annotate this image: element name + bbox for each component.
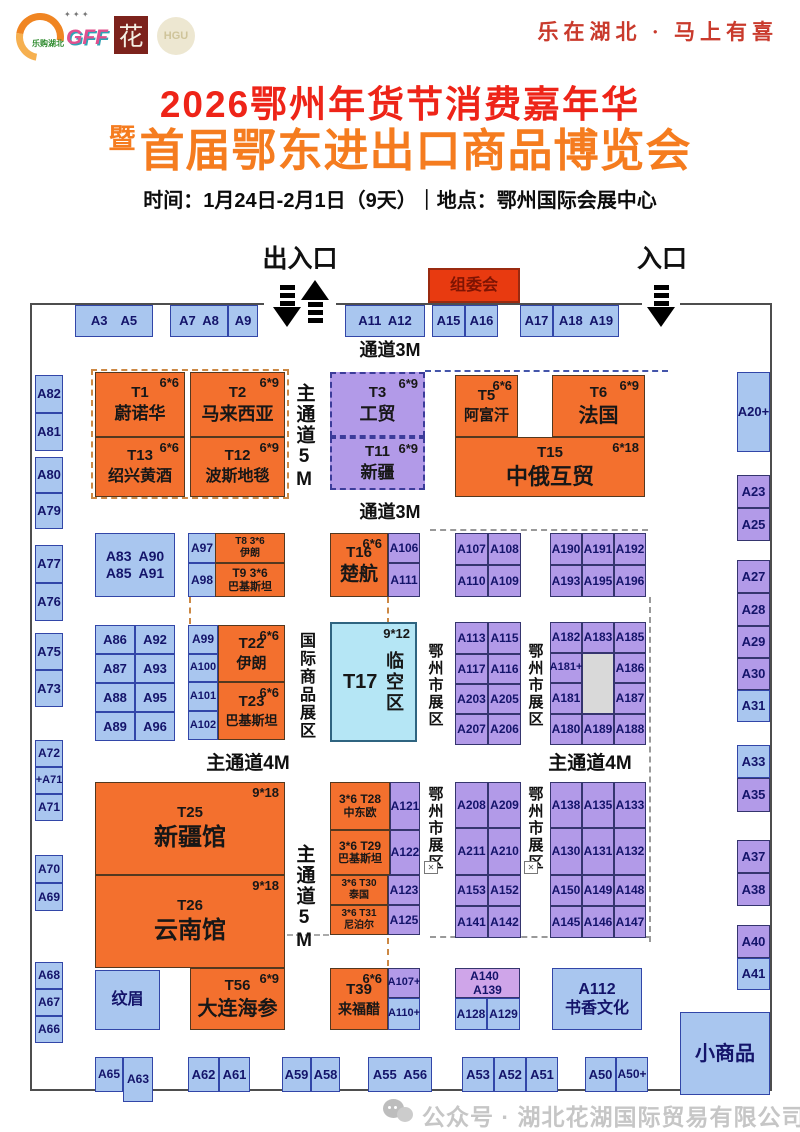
booth-A211: A211 <box>455 828 488 875</box>
booth-T56: 6*9T56大连海参 <box>190 968 285 1030</box>
label-主通道5M: 主通道5M <box>289 826 319 971</box>
booth-A123: A123 <box>388 875 420 905</box>
booth-A207: A207 <box>455 714 488 745</box>
booth-A185: A185 <box>614 622 646 653</box>
booth-A193: A193 <box>550 565 582 597</box>
booth-T16: 6*6T16楚航 <box>330 533 388 597</box>
booth-A70: A70 <box>35 855 63 883</box>
slogan: 乐在湖北 · 马上有喜 <box>537 16 778 46</box>
booth-A73: A73 <box>35 670 63 707</box>
booth-T2: 6*9T2马来西亚 <box>190 372 285 437</box>
booth-A31: A31 <box>737 690 770 722</box>
booth-T22: 6*6T22伊朗 <box>218 625 285 682</box>
booth-A96: A96 <box>135 712 175 741</box>
arrow-down-icon <box>646 283 676 333</box>
booth-A53: A53 <box>462 1057 494 1092</box>
booth-A107+: A107+ <box>388 968 420 998</box>
booth-A110: A110 <box>455 565 488 597</box>
booth-A15: A15 <box>432 305 465 337</box>
booth-T13: 6*6T13绍兴黄酒 <box>95 437 185 497</box>
title-main: 首届鄂东进出口商品博览会 <box>139 125 691 176</box>
booth-A55-A56: A55 A56 <box>368 1057 432 1092</box>
label-国际商品展区: 国际商品展区 <box>292 624 318 748</box>
booth-A50+: A50+ <box>616 1057 648 1092</box>
booth-A88: A88 <box>95 683 135 712</box>
booth-A16: A16 <box>465 305 498 337</box>
watermark-text: 公众号 · 湖北花湖国际贸易有限公司 <box>422 1098 800 1132</box>
booth-+A71: +A71 <box>35 767 63 794</box>
booth-A59: A59 <box>282 1057 311 1092</box>
booth-A131: A131 <box>582 828 614 875</box>
round-logo: HGU <box>156 16 196 56</box>
booth-T28: 3*6 T28中东欧 <box>330 782 390 830</box>
label-主通道4M: 主通道4M <box>196 751 300 775</box>
booth-A109: A109 <box>488 565 521 597</box>
booth-A107: A107 <box>455 533 488 565</box>
booth-A61: A61 <box>219 1057 250 1092</box>
booth-A183: A183 <box>582 622 614 653</box>
booth-A209: A209 <box>488 782 521 828</box>
booth-A149: A149 <box>582 875 614 906</box>
booth-A87: A87 <box>95 654 135 683</box>
booth-A128: A128 <box>455 998 487 1030</box>
booth-A98: A98 <box>188 563 216 597</box>
booth-A181+: A181+ <box>550 653 582 683</box>
arrow-up-icon <box>300 280 330 330</box>
booth-A150: A150 <box>550 875 582 906</box>
booth-A142: A142 <box>488 906 521 938</box>
booth-A29: A29 <box>737 626 770 658</box>
booth-A52: A52 <box>494 1057 526 1092</box>
booth-A146: A146 <box>582 906 614 938</box>
booth-A95: A95 <box>135 683 175 712</box>
stars-icon: ✦ ✦ ✦ <box>64 10 89 19</box>
label-主通道5M: 主通道5M <box>289 380 319 495</box>
booth-A100: A100 <box>188 654 218 682</box>
booth-A147: A147 <box>614 906 646 938</box>
dashed-line <box>189 597 191 624</box>
booth-A3-A5: A3 A5 <box>75 305 153 337</box>
booth-A181: A181 <box>550 683 582 714</box>
booth-A65: A65 <box>95 1057 123 1092</box>
booth-A102: A102 <box>188 711 218 740</box>
booth-A132: A132 <box>614 828 646 875</box>
booth-A11-A12: A11 A12 <box>345 305 425 337</box>
event-title-line2: 暨首届鄂东进出口商品博览会 <box>0 114 800 179</box>
booth-A66: A66 <box>35 1016 63 1043</box>
booth-T29: 3*6 T29巴基斯坦 <box>330 830 390 875</box>
booth-A76: A76 <box>35 583 63 621</box>
seal-logo: 花 <box>113 15 149 55</box>
booth-A93: A93 <box>135 654 175 683</box>
booth-A192: A192 <box>614 533 646 565</box>
booth-A27: A27 <box>737 560 770 593</box>
label-通道3M: 通道3M <box>330 339 450 361</box>
booth-A115: A115 <box>488 622 521 654</box>
booth-T26: 9*18T26云南馆 <box>95 875 285 968</box>
booth-A92: A92 <box>135 625 175 654</box>
booth-A113: A113 <box>455 622 488 654</box>
booth-A38: A38 <box>737 873 770 906</box>
booth-A130: A130 <box>550 828 582 875</box>
booth-A23: A23 <box>737 475 770 508</box>
booth-T8: T8 3*6伊朗 <box>215 533 285 563</box>
booth-T12: 6*9T12波斯地毯 <box>190 437 285 497</box>
booth-A206: A206 <box>488 714 521 745</box>
booth-A153: A153 <box>455 875 488 906</box>
label-通道3M: 通道3M <box>330 501 450 523</box>
booth-A72: A72 <box>35 740 63 767</box>
booth-A121: A121 <box>390 782 420 830</box>
label-鄂州市展区: 鄂州市展区 <box>523 625 547 745</box>
booth-A18-A19: A18 A19 <box>553 305 619 337</box>
booth-A189: A189 <box>582 714 614 745</box>
booth-A67: A67 <box>35 989 63 1016</box>
booth-A195: A195 <box>582 565 614 597</box>
booth-A50: A50 <box>585 1057 616 1092</box>
booth-T15: 6*18T15中俄互贸 <box>455 437 645 497</box>
booth-A37: A37 <box>737 840 770 873</box>
booth-T39: 6*6T39来福醋 <box>330 968 388 1030</box>
booth-A17: A17 <box>520 305 553 337</box>
booth-T5: 6*6T5阿富汗 <box>455 375 518 437</box>
booth-A9: A9 <box>228 305 258 337</box>
booth-A82: A82 <box>35 375 63 413</box>
booth-A133: A133 <box>614 782 646 828</box>
booth-A51: A51 <box>526 1057 558 1092</box>
booth-A77: A77 <box>35 545 63 583</box>
x-mark: ✕ <box>524 861 538 874</box>
booth-cell <box>582 653 614 714</box>
event-time-location: 时间：1月24日-2月1日（9天）｜地点：鄂州国际会展中心 <box>0 184 800 213</box>
x-mark: ✕ <box>424 861 438 874</box>
booth-A129: A129 <box>487 998 520 1030</box>
booth-A83-A90: A83 A90A85 A91 <box>95 533 175 597</box>
gff-logo: ✦ ✦ ✦ GFF <box>62 14 112 62</box>
booth-A122: A122 <box>390 830 420 875</box>
wechat-icon <box>383 1099 417 1127</box>
booth-A33: A33 <box>737 745 770 778</box>
booth-A68: A68 <box>35 962 63 989</box>
booth-A69: A69 <box>35 883 63 911</box>
label-鄂州市展区: 鄂州市展区 <box>423 625 447 745</box>
booth-T31: 3*6 T31尼泊尔 <box>330 905 388 935</box>
dashed-line <box>425 370 668 372</box>
booth-纹眉: 纹眉 <box>95 970 160 1030</box>
booth-A125: A125 <box>388 905 420 935</box>
booth-组委会: 组委会 <box>428 268 520 303</box>
booth-A180: A180 <box>550 714 582 745</box>
booth-A30: A30 <box>737 658 770 690</box>
booth-A138: A138 <box>550 782 582 828</box>
booth-A89: A89 <box>95 712 135 741</box>
booth-A141: A141 <box>455 906 488 938</box>
booth-A148: A148 <box>614 875 646 906</box>
booth-A117: A117 <box>455 654 488 684</box>
booth-A145: A145 <box>550 906 582 938</box>
booth-A112: A112书香文化 <box>552 968 642 1030</box>
booth-A135: A135 <box>582 782 614 828</box>
booth-A79: A79 <box>35 493 63 529</box>
poster-canvas: 乐购湖北 ✦ ✦ ✦ GFF 花 HGU 乐在湖北 · 马上有喜 2026鄂州年… <box>0 0 800 1132</box>
booth-A25: A25 <box>737 508 770 541</box>
booth-T1: 6*6T1蔚诺华 <box>95 372 185 437</box>
booth-A75: A75 <box>35 633 63 670</box>
dashed-line <box>430 529 648 531</box>
booth-A101: A101 <box>188 682 218 711</box>
booth-A40: A40 <box>737 925 770 958</box>
lehuo-hubei-logo: 乐购湖北 <box>14 12 66 62</box>
booth-A58: A58 <box>311 1057 340 1092</box>
booth-A182: A182 <box>550 622 582 653</box>
booth-A196: A196 <box>614 565 646 597</box>
booth-A20+: A20+ <box>737 372 770 452</box>
booth-A106: A106 <box>388 533 420 563</box>
booth-A110+: A110+ <box>388 998 420 1030</box>
booth-T3: 6*9T3工贸 <box>330 372 425 437</box>
booth-A99: A99 <box>188 625 218 654</box>
booth-A191: A191 <box>582 533 614 565</box>
booth-T17: 9*12T17临空区 <box>330 622 417 742</box>
booth-A152: A152 <box>488 875 521 906</box>
booth-A116: A116 <box>488 654 521 684</box>
booth-A190: A190 <box>550 533 582 565</box>
booth-小商品: 小商品 <box>680 1012 770 1095</box>
dashed-line <box>387 597 389 624</box>
booth-A7-A8: A7 A8 <box>170 305 228 337</box>
logo-caption: 乐购湖北 <box>32 38 64 49</box>
label-主通道4M: 主通道4M <box>538 751 642 775</box>
booth-A208: A208 <box>455 782 488 828</box>
booth-A188: A188 <box>614 714 646 745</box>
dashed-line <box>387 938 389 966</box>
booth-T11: 6*9T11新疆 <box>330 437 425 490</box>
booth-T9: T9 3*6巴基斯坦 <box>215 563 285 597</box>
booth-T30: 3*6 T30泰国 <box>330 875 388 905</box>
arrow-down-icon <box>272 283 302 333</box>
booth-A63: A63 <box>123 1057 153 1102</box>
booth-A62: A62 <box>188 1057 219 1092</box>
booth-A111: A111 <box>388 563 420 597</box>
booth-A81: A81 <box>35 413 63 451</box>
label-出入口: 出入口 <box>252 243 348 275</box>
booth-A71: A71 <box>35 794 63 821</box>
booth-A97: A97 <box>188 533 216 563</box>
booth-T25: 9*18T25新疆馆 <box>95 782 285 875</box>
label-入口: 入口 <box>630 243 694 275</box>
booth-T6: 6*9T6法国 <box>552 375 645 437</box>
title-prefix: 暨 <box>108 124 135 154</box>
booth-A203: A203 <box>455 684 488 714</box>
booth-A80: A80 <box>35 457 63 493</box>
booth-A205: A205 <box>488 684 521 714</box>
booth-T23: 6*6T23巴基斯坦 <box>218 682 285 740</box>
booth-A86: A86 <box>95 625 135 654</box>
booth-A186: A186 <box>614 653 646 683</box>
booth-A35: A35 <box>737 778 770 812</box>
booth-A187: A187 <box>614 683 646 714</box>
booth-A41: A41 <box>737 958 770 990</box>
booth-A140-A139: A140 A139 <box>455 968 520 998</box>
booth-A28: A28 <box>737 593 770 626</box>
booth-A108: A108 <box>488 533 521 565</box>
dashed-line <box>649 597 651 942</box>
booth-A210: A210 <box>488 828 521 875</box>
